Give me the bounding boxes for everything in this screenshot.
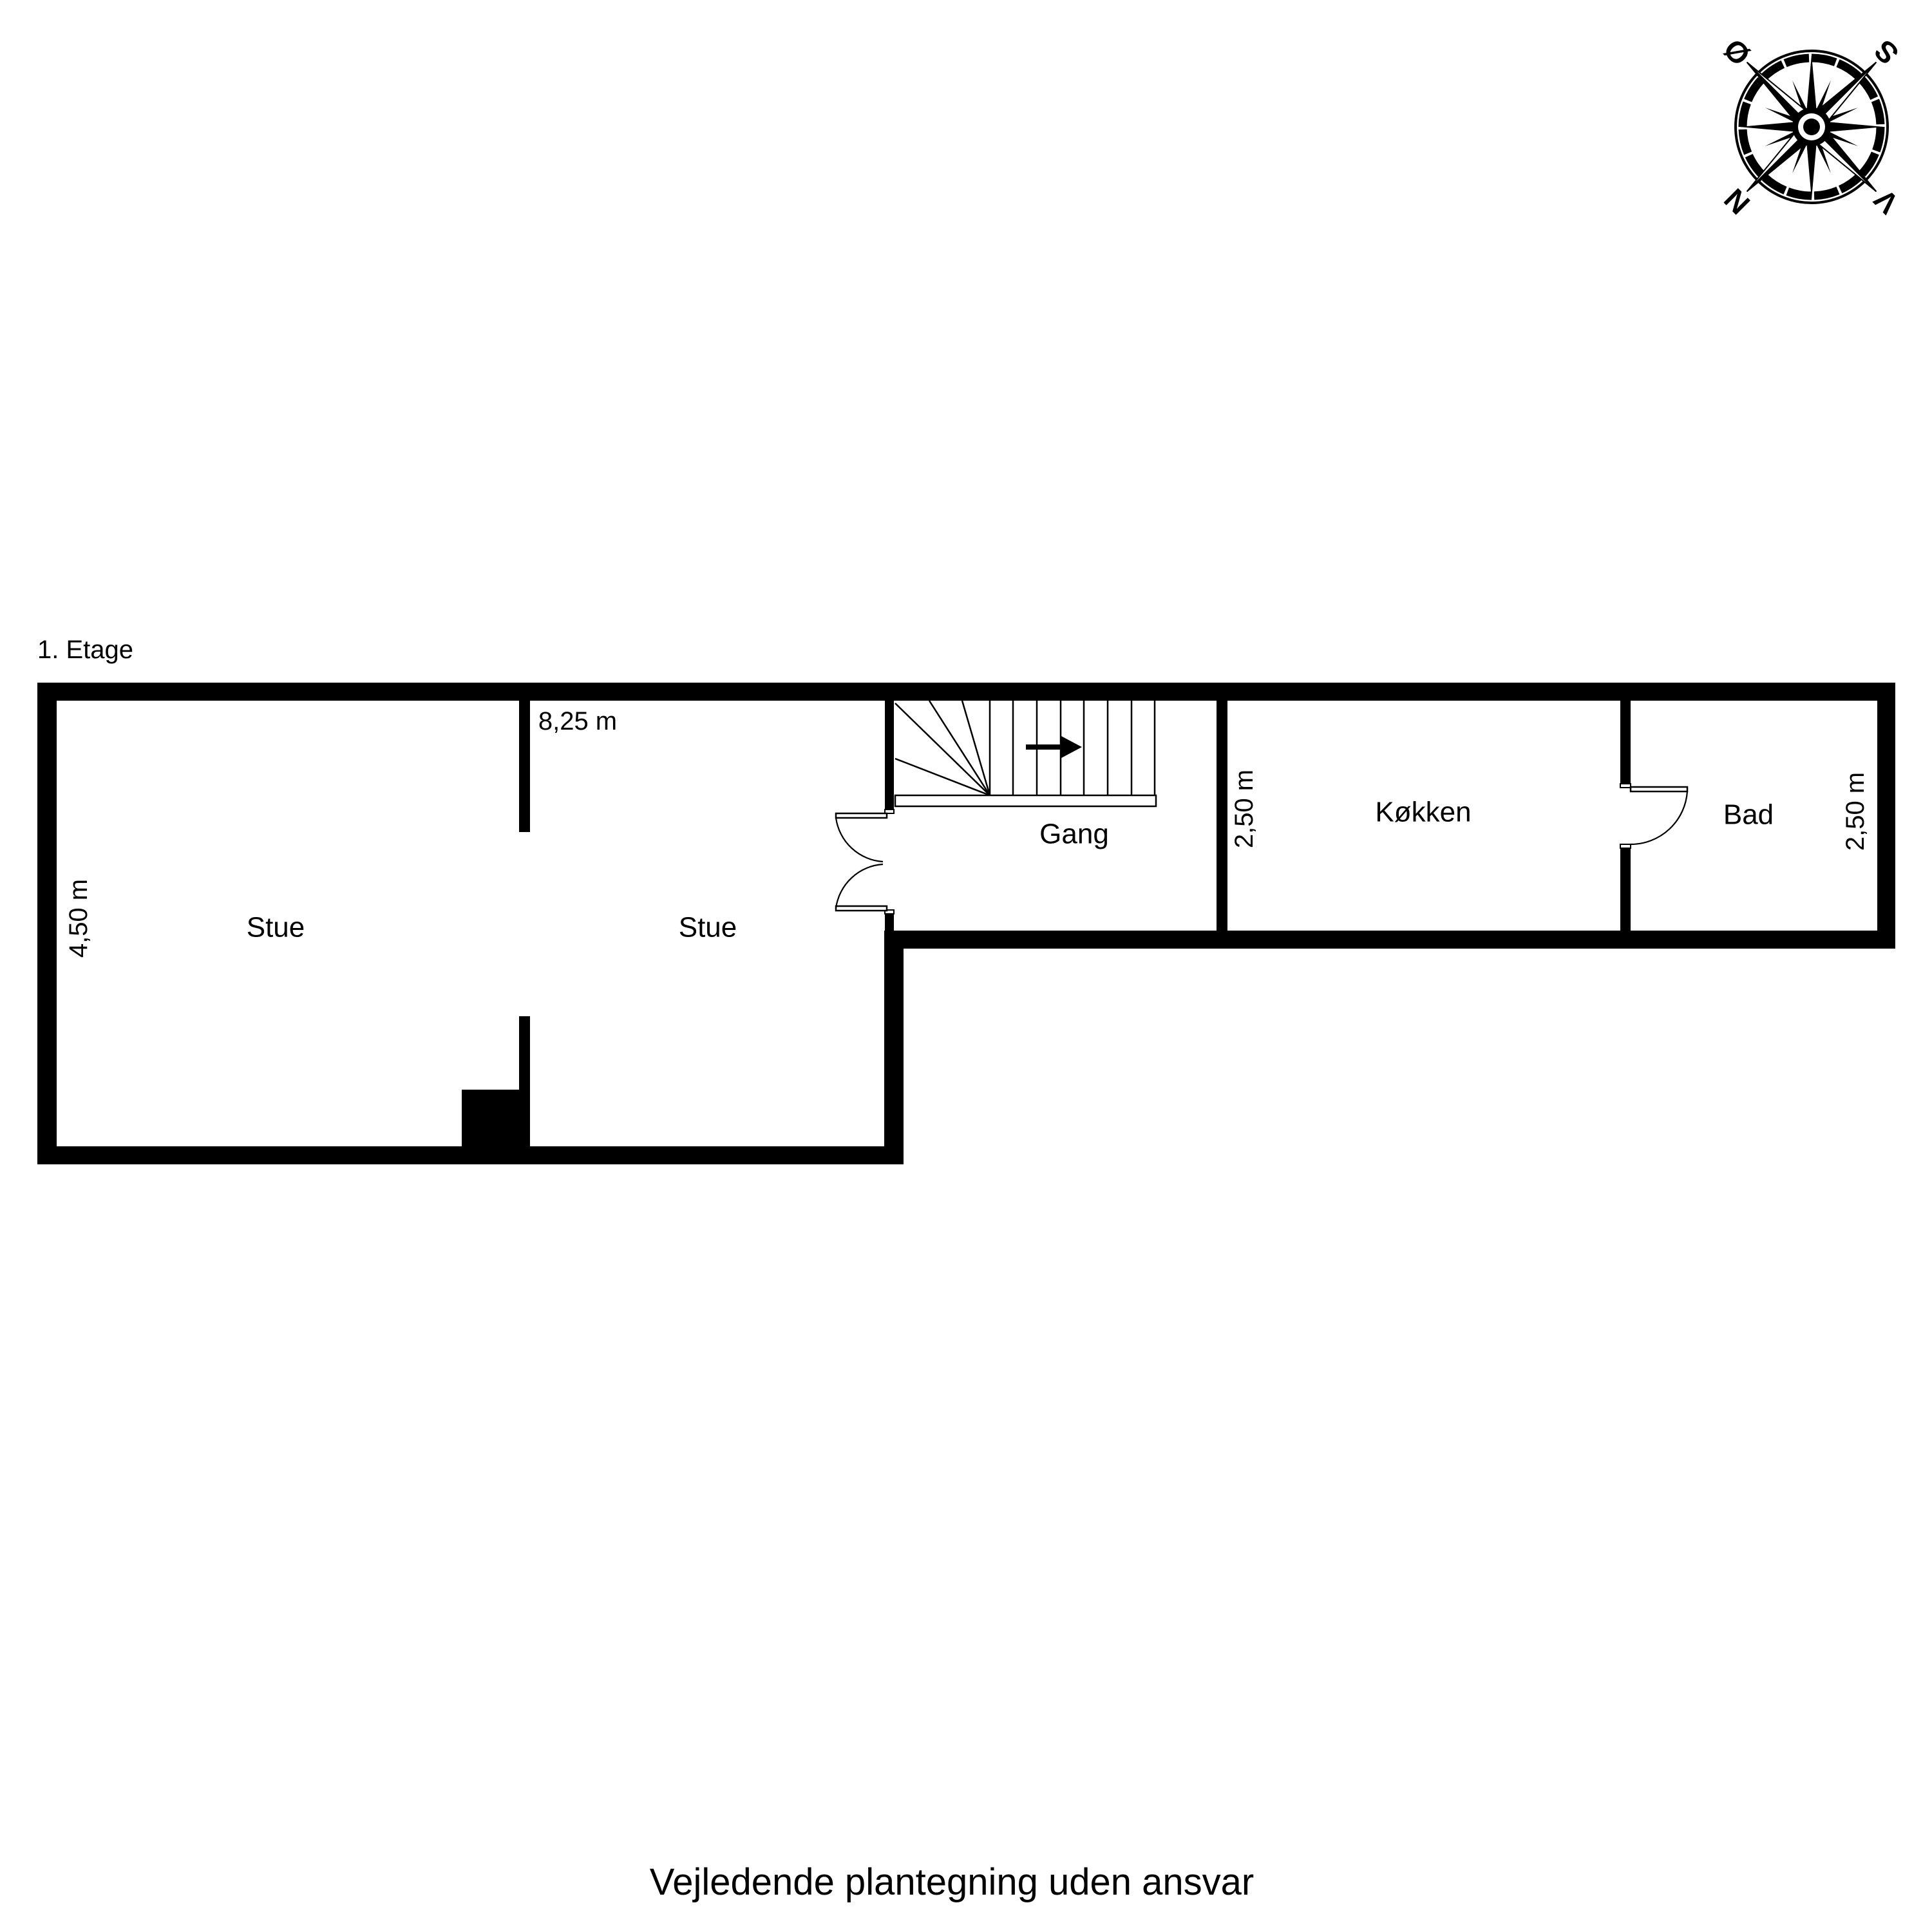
wall-stue-gang-below-door (885, 914, 894, 931)
stair-direction-arrow (1026, 736, 1082, 758)
double-door-leaf-top (836, 813, 887, 818)
arrow-head (1061, 736, 1082, 758)
chimney-block (462, 1090, 530, 1148)
floor-plan-svg: 1. Etage Stue Stue Gang Køkken Bad 8,25 … (0, 0, 1932, 1932)
room-label-stue-1: Stue (247, 912, 305, 943)
bad-door-jamb-bottom (1620, 844, 1631, 848)
dimension-koekken-height: 2,50 m (1230, 770, 1258, 848)
wall-koekken-bad-upper (1620, 701, 1631, 784)
dimension-stue-width: 8,25 m (538, 707, 617, 735)
door-swing-arc (1631, 791, 1687, 844)
bad-door-leaf (1631, 787, 1687, 791)
compass-rose: N Ø S V (1642, 0, 1932, 295)
stair-winder-line (895, 759, 990, 795)
wall-stue-divider-lower (519, 1016, 530, 1090)
floor-plan-page: 1. Etage Stue Stue Gang Køkken Bad 8,25 … (0, 0, 1932, 1932)
wall-stue-east-lower (884, 931, 904, 1164)
door-swing-arc (836, 864, 883, 908)
dimension-bad-height: 2,50 m (1841, 772, 1870, 851)
door-koekken-bad (1631, 787, 1687, 844)
stair-stringer (895, 795, 1156, 806)
room-label-stue-2: Stue (679, 912, 737, 943)
staircase (895, 701, 1156, 806)
walls (37, 683, 1895, 1164)
double-door-leaf-bottom (836, 906, 887, 911)
floor-title: 1. Etage (37, 636, 133, 664)
wall-bottom-right-section (894, 931, 1895, 949)
wall-left-outer (37, 683, 57, 1164)
room-label-gang: Gang (1039, 819, 1109, 850)
room-label-bad: Bad (1723, 799, 1774, 831)
double-door-stue-gang (836, 813, 887, 911)
dimension-stue-height: 4,50 m (64, 879, 93, 958)
wall-koekken-bad-lower (1620, 848, 1631, 931)
bad-door-jamb-top (1620, 784, 1631, 788)
stair-winder-line (929, 701, 990, 795)
wall-gang-koekken (1217, 701, 1227, 931)
wall-right-outer (1877, 683, 1895, 949)
wall-top-outer (37, 683, 1895, 701)
room-label-koekken: Køkken (1375, 797, 1471, 828)
wall-stue-divider-upper (519, 701, 530, 832)
door-swing-arc (836, 818, 883, 862)
disclaimer-caption: Vejledende plantegning uden ansvar (650, 1861, 1254, 1903)
wall-stue-gang-upper (885, 701, 894, 810)
wall-bottom-stue-section (37, 1146, 904, 1164)
